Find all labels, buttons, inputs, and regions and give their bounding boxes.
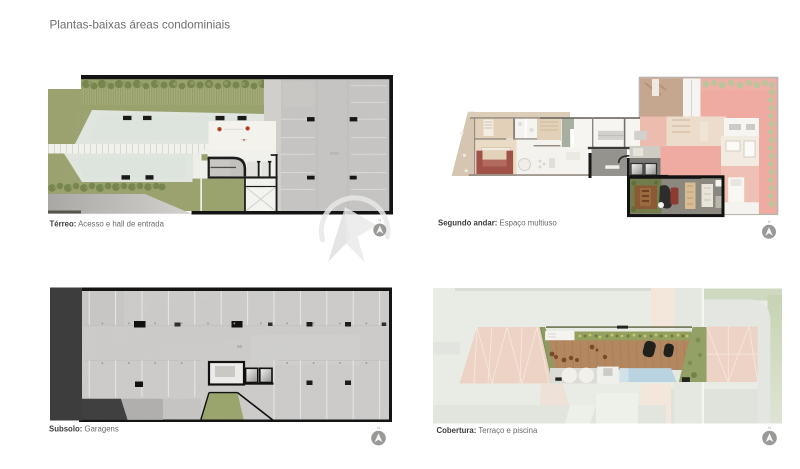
svg-text:Cobertura: Terraço e piscina: Cobertura: Terraço e piscina (437, 426, 538, 435)
svg-text:Plantas-baixas áreas condomini: Plantas-baixas áreas condominiais (50, 19, 231, 32)
svg-text:36: 36 (237, 344, 243, 349)
svg-text:Subsolo: Garagens: Subsolo: Garagens (49, 425, 119, 434)
svg-text:N: N (378, 218, 381, 223)
svg-text:N: N (768, 425, 771, 430)
svg-text:Térreo: Acesso e hall de entra: Térreo: Acesso e hall de entrada (50, 220, 165, 229)
svg-text:N: N (377, 425, 380, 430)
svg-text:N: N (768, 219, 771, 224)
svg-text:Segundo andar: Espaço multiuso: Segundo andar: Espaço multiuso (438, 219, 557, 228)
